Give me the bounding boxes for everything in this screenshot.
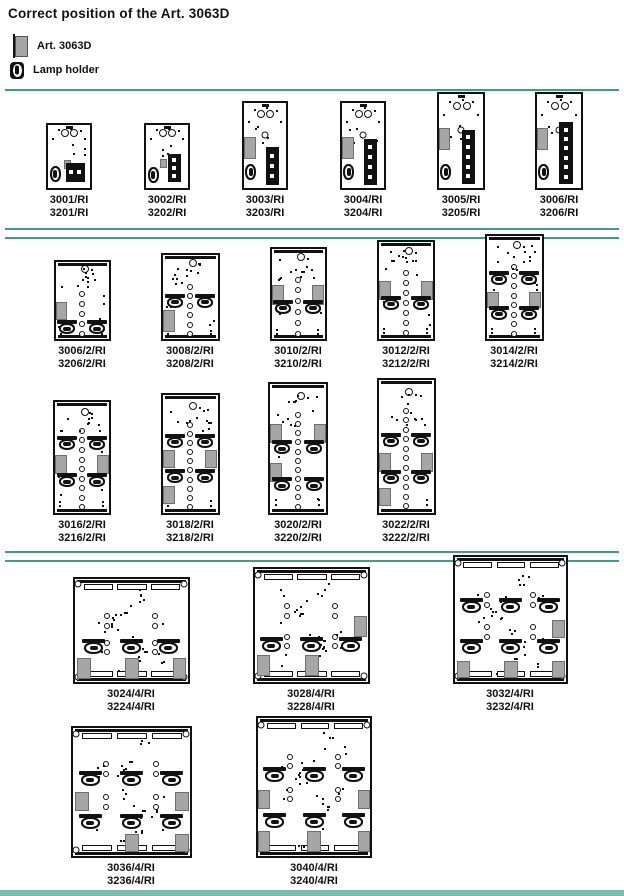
hole-dot xyxy=(478,621,480,623)
lamp-hood xyxy=(460,598,483,602)
part-number: 3204/RI xyxy=(344,207,383,220)
lamp-hood xyxy=(273,300,293,304)
hole-dot xyxy=(541,114,543,116)
hole-dot xyxy=(202,430,204,432)
corner-screw xyxy=(361,673,368,680)
terminal-square xyxy=(172,174,176,178)
hole-dot xyxy=(280,121,282,123)
hole-dot xyxy=(483,617,485,619)
diagram-3036-4-ri: 3036/4/RI3236/4/RI xyxy=(60,726,202,888)
hole-dot xyxy=(420,395,422,397)
top-rail xyxy=(381,243,431,246)
hole-dot xyxy=(280,589,282,591)
lamp-hood xyxy=(304,440,324,444)
top-rail xyxy=(489,237,540,240)
section2-row2: 3016/2/RI3216/2/RI3018/2/RI3218/2/RI3020… xyxy=(0,382,624,545)
hole-dot xyxy=(303,846,305,848)
lamp-holder xyxy=(383,299,399,310)
hole-dot xyxy=(67,418,69,420)
hole-circle xyxy=(403,503,409,509)
lamp-hood xyxy=(342,813,365,817)
hole-dot xyxy=(492,611,494,613)
art-3063d-part xyxy=(307,831,320,852)
terminal-square xyxy=(564,128,568,132)
hole-dot xyxy=(139,660,141,662)
part-number: 3232/4/RI xyxy=(486,701,534,714)
hole-dot xyxy=(208,422,210,424)
terminal-block xyxy=(266,147,279,184)
hole-dot xyxy=(415,394,417,396)
hole-dot xyxy=(472,101,474,103)
hole-dot xyxy=(279,259,281,261)
hole-dot xyxy=(309,634,311,636)
diagram-box-3004-ri xyxy=(340,101,386,190)
hole-dot xyxy=(248,121,250,123)
hole-dot xyxy=(130,605,132,607)
hole-dot xyxy=(182,138,184,140)
part-number: 3036/4/RI xyxy=(107,862,155,875)
bottom-rail xyxy=(457,678,564,681)
hole-circle xyxy=(266,110,274,118)
hole-dot xyxy=(186,269,188,271)
rail-slot xyxy=(82,733,112,739)
lamp-hood xyxy=(87,320,107,324)
hole-dot xyxy=(104,631,106,633)
hole-dot xyxy=(513,256,515,258)
hole-circle xyxy=(530,634,536,640)
hole-dot xyxy=(318,499,320,501)
hole-dot xyxy=(402,256,404,258)
hole-dot xyxy=(267,137,269,139)
hole-circle xyxy=(355,110,363,118)
hole-circle xyxy=(530,624,536,630)
hole-dot xyxy=(283,595,285,597)
diagram-label-3006-ri: 3006/RI3206/RI xyxy=(540,194,579,220)
section3-row1: 3024/4/RI3224/4/RI3028/4/RI3228/4/RI3032… xyxy=(0,558,624,714)
hole-circle xyxy=(79,457,85,463)
hole-dot xyxy=(84,138,86,140)
hole-circle xyxy=(403,310,409,316)
terminal-square xyxy=(564,156,568,160)
rail-slot xyxy=(497,562,526,568)
hole-circle xyxy=(332,643,338,649)
art-3063d-part xyxy=(75,792,89,811)
hole-dot xyxy=(98,622,100,624)
hole-dot xyxy=(156,811,158,813)
knockout-circle xyxy=(405,247,413,255)
hole-dot xyxy=(378,121,380,123)
hole-dot xyxy=(519,584,521,586)
rail-slot xyxy=(267,845,296,851)
hole-circle xyxy=(103,771,109,777)
lamp-holder xyxy=(305,816,324,828)
lamp-holder xyxy=(341,640,360,652)
lamp-holder xyxy=(59,439,75,450)
corner-screw xyxy=(74,581,81,588)
diagram-label-3008-2-ri: 3008/2/RI3208/2/RI xyxy=(166,345,214,371)
hole-dot xyxy=(317,593,319,595)
hole-circle xyxy=(187,431,193,437)
hole-dot xyxy=(167,333,169,335)
part-number: 3024/4/RI xyxy=(107,688,155,701)
hole-circle xyxy=(561,102,569,110)
hole-dot xyxy=(203,410,205,412)
hole-dot xyxy=(531,245,533,247)
hole-dot xyxy=(89,412,91,414)
lamp-hood xyxy=(160,771,183,775)
hole-dot xyxy=(287,418,289,420)
part-number: 3010/2/RI xyxy=(274,345,322,358)
terminal-square xyxy=(564,175,568,179)
art-3063d-part xyxy=(163,450,175,468)
terminal-square xyxy=(368,165,372,169)
diagram-box-3036-4-ri xyxy=(71,726,192,858)
terminal-square xyxy=(77,170,81,174)
hole-dot xyxy=(490,608,492,610)
hole-dot xyxy=(316,396,318,398)
hole-circle xyxy=(403,280,409,286)
hole-dot xyxy=(83,268,85,270)
lamp-holder xyxy=(306,443,322,454)
hole-dot xyxy=(403,250,405,252)
hole-circle xyxy=(511,273,517,279)
legend-art-label: Art. 3063D xyxy=(37,40,91,52)
art-3063d-part xyxy=(379,453,391,472)
lamp-hood xyxy=(411,296,431,300)
lamp-hood xyxy=(272,440,292,444)
hole-dot xyxy=(524,641,526,643)
hole-dot xyxy=(133,805,135,807)
part-number: 3228/4/RI xyxy=(287,701,335,714)
legend-lamp-label: Lamp holder xyxy=(33,64,99,76)
hole-circle xyxy=(332,613,338,619)
hole-circle xyxy=(403,455,409,461)
lamp-holder xyxy=(462,601,481,613)
hole-circle xyxy=(79,311,85,317)
art-3063d-part xyxy=(77,658,92,679)
corner-screw xyxy=(361,571,368,578)
section2-row1: 3006/2/RI3206/2/RI3008/2/RI3208/2/RI3010… xyxy=(0,238,624,371)
hole-circle xyxy=(403,300,409,306)
hole-dot xyxy=(537,666,539,668)
lamp-holder xyxy=(462,642,481,654)
hole-dot xyxy=(428,314,430,316)
top-rail xyxy=(381,381,432,384)
lamp-hood xyxy=(489,271,509,275)
lamp-hood xyxy=(411,433,431,437)
lamp-holder xyxy=(81,817,100,829)
hole-dot xyxy=(196,417,198,419)
lamp-holder xyxy=(262,640,281,652)
hole-circle xyxy=(104,613,110,619)
hole-dot xyxy=(301,271,303,273)
hole-dot xyxy=(210,330,212,332)
hole-circle xyxy=(295,494,301,500)
hole-circle xyxy=(484,634,490,640)
lamp-holder xyxy=(122,642,141,654)
hole-circle xyxy=(187,293,193,299)
hole-dot xyxy=(507,252,509,254)
hole-circle xyxy=(335,796,341,802)
lamp-hood xyxy=(411,470,431,474)
catalog-page: Correct position of the Art. 3063D Art. … xyxy=(0,0,624,896)
hole-circle xyxy=(187,467,193,473)
hole-dot xyxy=(424,424,426,426)
lamp-hood xyxy=(381,470,401,474)
hole-dot xyxy=(421,418,423,420)
hole-dot xyxy=(429,324,431,326)
hole-dot xyxy=(275,499,277,501)
hole-dot xyxy=(323,732,325,734)
hole-dot xyxy=(142,810,144,812)
hole-circle xyxy=(284,643,290,649)
knockout-circle xyxy=(81,408,89,416)
part-number: 3008/2/RI xyxy=(166,345,214,358)
hole-circle xyxy=(295,439,301,445)
hole-dot xyxy=(177,268,179,270)
part-number: 3206/RI xyxy=(540,207,579,220)
hole-dot xyxy=(459,125,461,127)
hole-circle xyxy=(168,129,176,137)
hole-dot xyxy=(408,394,410,396)
hole-dot xyxy=(415,419,417,421)
hole-dot xyxy=(73,153,75,155)
hole-circle xyxy=(153,771,159,777)
hole-dot xyxy=(415,260,417,262)
hole-dot xyxy=(77,285,79,287)
lamp-holder xyxy=(344,816,363,828)
hole-dot xyxy=(82,279,84,281)
hole-dot xyxy=(537,663,539,665)
part-number: 3224/4/RI xyxy=(107,701,155,714)
hole-dot xyxy=(120,840,122,842)
hole-dot xyxy=(254,109,256,111)
hole-dot xyxy=(199,407,201,409)
art-3063d-part xyxy=(354,616,368,636)
hole-dot xyxy=(266,107,268,109)
hole-dot xyxy=(126,612,128,614)
lamp-holder xyxy=(89,476,105,487)
lamp-hood xyxy=(519,271,539,275)
diagram-label-3001-ri: 3001/RI3201/RI xyxy=(50,194,89,220)
hole-dot xyxy=(323,640,325,642)
art-3063d-part xyxy=(552,620,565,639)
hole-dot xyxy=(174,274,176,276)
rail-slot xyxy=(151,584,180,590)
hole-circle xyxy=(511,302,517,308)
hole-dot xyxy=(296,609,298,611)
diagram-label-3012-2-ri: 3012/2/RI3212/2/RI xyxy=(382,345,430,371)
hole-dot xyxy=(325,650,327,652)
top-slot xyxy=(556,95,563,98)
hole-dot xyxy=(197,272,199,274)
hole-dot xyxy=(383,332,385,334)
lamp-holder xyxy=(245,164,256,180)
hole-dot xyxy=(312,410,314,412)
hole-circle xyxy=(403,427,409,433)
lamp-hood xyxy=(537,639,560,643)
hole-dot xyxy=(52,138,54,140)
hole-dot xyxy=(346,121,348,123)
part-number: 3001/RI xyxy=(50,194,89,207)
lamp-hood xyxy=(57,320,77,324)
corner-screw xyxy=(454,560,461,567)
hole-circle xyxy=(159,129,167,137)
part-number: 3222/2/RI xyxy=(382,532,430,545)
part-number: 3205/RI xyxy=(442,207,481,220)
footer-accent-bar xyxy=(0,890,624,896)
diagram-label-3002-ri: 3002/RI3202/RI xyxy=(148,194,187,220)
diagram-box-3032-4-ri xyxy=(453,555,568,684)
hole-dot xyxy=(301,762,303,764)
hole-dot xyxy=(181,282,183,284)
hole-dot xyxy=(285,654,287,656)
diagram-label-3022-2-ri: 3022/2/RI3222/2/RI xyxy=(382,519,430,545)
diagram-box-3008-2-ri xyxy=(161,253,220,341)
lamp-hood xyxy=(460,639,483,643)
hole-dot xyxy=(529,260,531,262)
hole-dot xyxy=(176,278,178,280)
top-slot xyxy=(458,95,465,98)
hole-dot xyxy=(72,144,74,146)
hole-circle xyxy=(295,412,301,418)
hole-dot xyxy=(87,277,89,279)
lamp-holder xyxy=(539,642,558,654)
hole-circle xyxy=(403,475,409,481)
hole-circle xyxy=(511,283,517,289)
lamp-holder xyxy=(305,770,324,782)
hole-dot xyxy=(405,257,407,259)
hole-circle xyxy=(284,634,290,640)
hole-dot xyxy=(491,332,493,334)
hole-dot xyxy=(352,109,354,111)
part-number: 3201/RI xyxy=(50,207,89,220)
hole-circle xyxy=(295,287,301,293)
hole-dot xyxy=(262,142,264,144)
hole-dot xyxy=(80,130,82,132)
hole-dot xyxy=(406,261,408,263)
hole-dot xyxy=(102,505,104,507)
hole-dot xyxy=(113,619,115,621)
hole-circle xyxy=(152,623,158,629)
hole-dot xyxy=(117,629,119,631)
hole-dot xyxy=(523,246,525,248)
art-3063d-part xyxy=(160,159,166,168)
hole-dot xyxy=(190,270,192,272)
hole-circle xyxy=(511,293,517,299)
diagram-3002-ri: 3002/RI3202/RI xyxy=(118,123,216,220)
hole-dot xyxy=(70,128,72,130)
hole-circle xyxy=(511,321,517,327)
art-3063d-part xyxy=(552,661,565,679)
hole-circle xyxy=(104,649,110,655)
lamp-holder xyxy=(344,770,363,782)
lamp-holder xyxy=(81,774,100,786)
part-number: 3206/2/RI xyxy=(58,358,106,371)
lamp-holder xyxy=(50,166,61,182)
hole-dot xyxy=(117,775,119,777)
hole-dot xyxy=(101,333,103,335)
hole-dot xyxy=(87,423,89,425)
diagram-label-3032-4-ri: 3032/4/RI3232/4/RI xyxy=(486,688,534,714)
hole-dot xyxy=(307,397,309,399)
hole-dot xyxy=(412,260,414,262)
hole-circle xyxy=(284,603,290,609)
terminal-square xyxy=(69,170,73,174)
hole-dot xyxy=(477,114,479,116)
hole-dot xyxy=(206,420,208,422)
hole-dot xyxy=(342,788,344,790)
hole-dot xyxy=(462,99,464,101)
hole-circle xyxy=(287,787,293,793)
lamp-holder xyxy=(122,774,141,786)
hole-dot xyxy=(332,737,334,739)
hole-dot xyxy=(288,401,290,403)
hole-dot xyxy=(407,403,409,405)
hole-circle xyxy=(70,129,78,137)
part-number: 3018/2/RI xyxy=(166,519,214,532)
lamp-holder xyxy=(343,164,354,180)
hole-circle xyxy=(484,592,490,598)
hole-dot xyxy=(524,654,526,656)
lamp-hood xyxy=(120,771,143,775)
terminal-block xyxy=(364,139,377,185)
hole-dot xyxy=(297,395,299,397)
part-number: 3212/2/RI xyxy=(382,358,430,371)
lamp-hood xyxy=(195,469,215,473)
hole-circle xyxy=(484,624,490,630)
hole-dot xyxy=(536,289,538,291)
hole-dot xyxy=(102,501,104,503)
lamp-holder xyxy=(413,473,429,484)
hole-circle xyxy=(79,331,85,337)
part-number: 3020/2/RI xyxy=(274,519,322,532)
terminal-square xyxy=(466,174,470,178)
hole-dot xyxy=(313,760,315,762)
lamp-holder xyxy=(122,817,141,829)
hole-dot xyxy=(496,673,498,675)
lamp-hood xyxy=(303,767,326,771)
hole-dot xyxy=(162,623,164,625)
lamp-holder xyxy=(274,443,290,454)
part-number: 3203/RI xyxy=(246,207,285,220)
hole-circle xyxy=(79,466,85,472)
hole-dot xyxy=(141,830,143,832)
knockout-circle xyxy=(189,402,197,410)
hole-dot xyxy=(207,409,209,411)
hole-circle xyxy=(403,320,409,326)
lamp-hood xyxy=(381,433,401,437)
hole-dot xyxy=(162,829,164,831)
hole-dot xyxy=(111,626,113,628)
hole-dot xyxy=(186,275,188,277)
hole-circle xyxy=(511,331,517,337)
hole-circle xyxy=(403,270,409,276)
lamp-hood xyxy=(165,469,185,473)
hole-dot xyxy=(322,798,324,800)
hole-dot xyxy=(144,810,146,812)
part-number: 3040/4/RI xyxy=(290,862,338,875)
diagram-box-3006-2-ri xyxy=(54,260,111,341)
hole-dot xyxy=(322,803,324,805)
corner-screw xyxy=(363,721,370,728)
diagram-3003-ri: 3003/RI3203/RI xyxy=(216,101,314,220)
art-3063d-part xyxy=(173,658,187,679)
hole-dot xyxy=(294,425,296,427)
hole-dot xyxy=(324,748,326,750)
hole-dot xyxy=(280,622,282,624)
hole-circle xyxy=(295,309,301,315)
